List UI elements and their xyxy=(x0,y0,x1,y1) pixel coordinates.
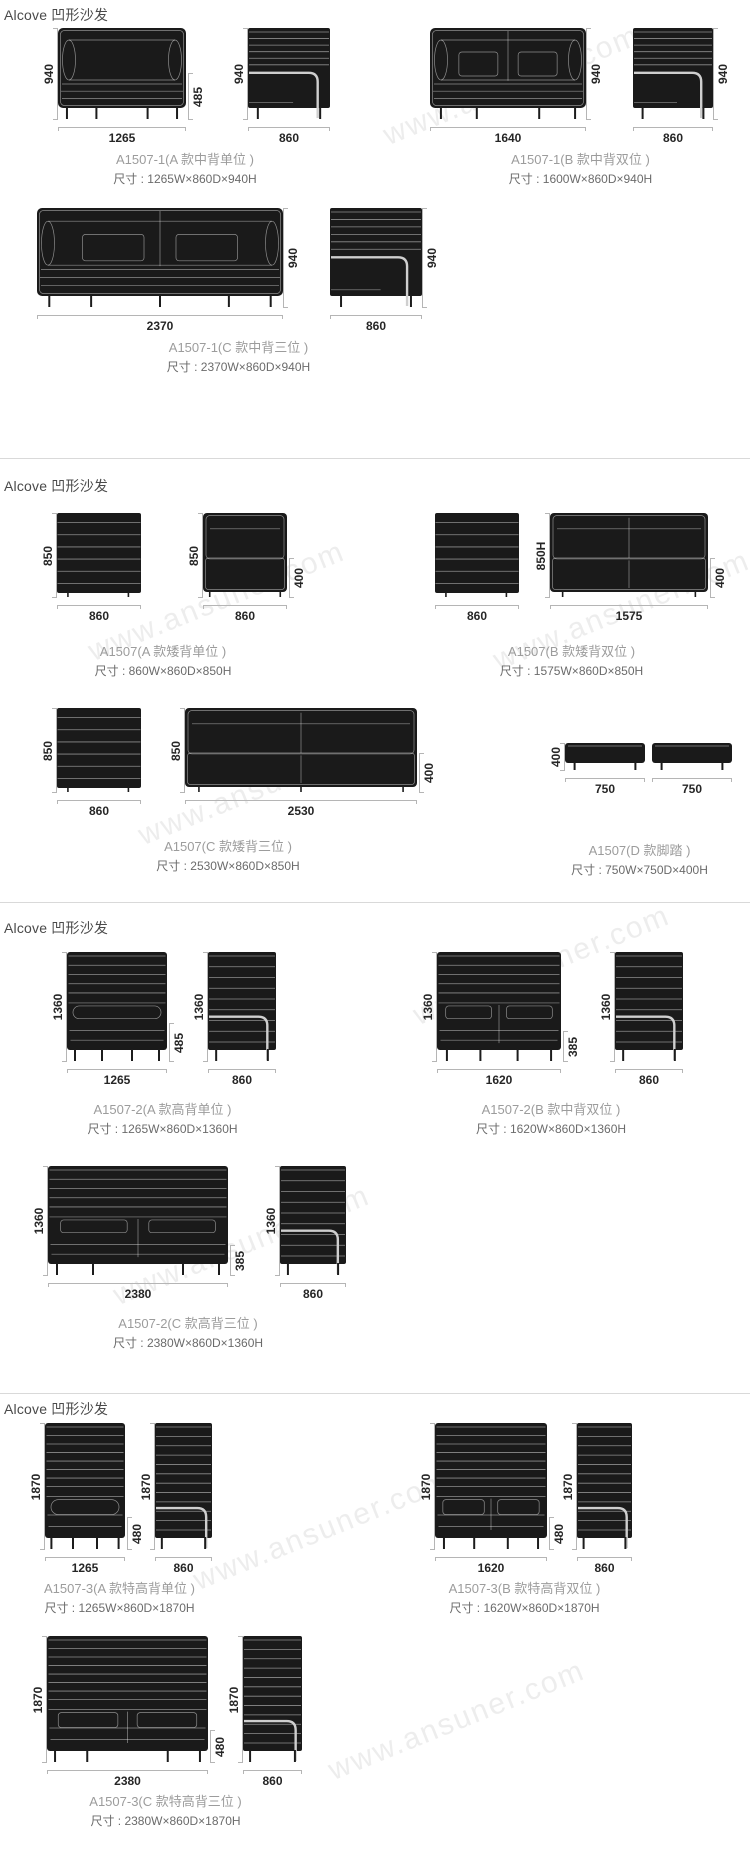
arm-height-dim: 485 xyxy=(188,73,206,120)
product-name: A1507-2(C 款高背三位 ) xyxy=(30,1315,346,1333)
sofa-side-drawing xyxy=(248,28,330,120)
sofa-side-drawing xyxy=(577,1423,632,1550)
back-panel-view: 850 860 xyxy=(39,513,141,621)
product-views: 1870 480 1265 1870 860 xyxy=(27,1423,212,1573)
side-view: 1870 860 xyxy=(137,1423,212,1573)
arm-height-dim: 385 xyxy=(230,1245,248,1276)
product-views: 1640 940 860 940 xyxy=(430,28,731,143)
height-dim: 940 xyxy=(586,28,604,120)
front-view: 1640 940 xyxy=(430,28,604,143)
sofa-back-panel-drawing xyxy=(57,513,141,598)
width-dim: 860 xyxy=(57,605,141,621)
width-dim: 860 xyxy=(633,127,713,143)
height-dim: 1870 xyxy=(225,1636,243,1763)
product-views: 2370 940 860 940 xyxy=(37,208,440,331)
width-dim: 860 xyxy=(330,315,422,331)
front-view: 850 400 860 xyxy=(185,513,287,621)
product-views: 850 860 850 400 2530 xyxy=(39,708,417,816)
front-view: 1870 480 2380 xyxy=(29,1636,208,1786)
product-a1507-2a: 1360 485 1265 1360 860 A1507-2(A 款高背单位 )… xyxy=(49,952,276,1139)
product-a1507c: 850 860 850 400 2530 A1507(C 款矮背三位 ) 尺寸 … xyxy=(39,708,417,876)
watermark-text: www.ansuner.com xyxy=(324,1654,590,1788)
product-views: 400 750 750 xyxy=(547,743,732,794)
product-dimensions: 尺寸 : 1265W×860D×1870H xyxy=(27,1598,212,1618)
sofa-front-drawing xyxy=(67,952,167,1062)
width-dim: 860 xyxy=(615,1069,683,1085)
product-a1507b: 860 850H 400 1575 A1507(B 款矮背双位 ) 尺寸 : 1… xyxy=(435,513,708,681)
sofa-side-drawing xyxy=(208,952,276,1062)
height-dim: 940 xyxy=(422,208,440,308)
height-dim: 940 xyxy=(283,208,301,308)
height-dim: 850 xyxy=(185,513,203,598)
section-divider xyxy=(0,458,750,459)
height-dim: 940 xyxy=(713,28,731,120)
height-dim: 1870 xyxy=(29,1636,47,1763)
product-dimensions: 尺寸 : 750W×750D×400H xyxy=(547,860,732,880)
product-a1507-3c: 1870 480 2380 1870 860 A1507-3(C 款特高背三位 … xyxy=(29,1636,302,1831)
product-a1507-1c: 2370 940 860 940 A1507-1(C 款中背三位 ) 尺寸 : … xyxy=(37,208,440,377)
product-dimensions: 尺寸 : 2380W×860D×1870H xyxy=(29,1811,302,1831)
seat-height-dim: 400 xyxy=(289,558,307,598)
height-dim: 1360 xyxy=(30,1166,48,1276)
product-a1507-1a: 940 485 1265 940 860 A1507-1(A 款中背单位 ) 尺… xyxy=(40,28,330,189)
width-dim: 1575 xyxy=(550,605,708,621)
product-views: 860 850H 400 1575 xyxy=(435,513,708,621)
back-panel-view: 860 xyxy=(435,513,519,621)
width-dim: 750 xyxy=(565,778,645,794)
front-view: 1870 480 1620 xyxy=(417,1423,547,1573)
sofa-front-drawing xyxy=(203,513,287,598)
product-name: A1507-2(A 款高背单位 ) xyxy=(49,1101,276,1119)
front-view: 850H 400 1575 xyxy=(532,513,708,621)
product-dimensions: 尺寸 : 2370W×860D×940H xyxy=(37,357,440,377)
width-dim: 860 xyxy=(155,1557,212,1573)
side-view: 1870 860 xyxy=(559,1423,632,1573)
height-dim: 1870 xyxy=(27,1423,45,1550)
product-name: A1507(C 款矮背三位 ) xyxy=(39,838,417,856)
front-view: 1360 485 1265 xyxy=(49,952,167,1085)
sofa-side-drawing xyxy=(155,1423,212,1550)
front-view: 1870 480 1265 xyxy=(27,1423,125,1573)
footstool-view: 750 xyxy=(652,743,732,794)
sofa-front-drawing xyxy=(550,513,708,598)
side-view: 940 860 xyxy=(230,28,330,143)
width-dim: 860 xyxy=(203,605,287,621)
product-views: 1870 480 1620 1870 860 xyxy=(417,1423,632,1573)
width-dim: 2370 xyxy=(37,315,283,331)
product-a1507-2c: 1360 385 2380 1360 860 A1507-2(C 款高背三位 )… xyxy=(30,1166,346,1353)
product-a1507-3a: 1870 480 1265 1870 860 A1507-3(A 款特高背单位 … xyxy=(27,1423,212,1618)
front-view: 940 485 1265 xyxy=(40,28,186,143)
sofa-side-drawing xyxy=(243,1636,302,1763)
product-dimensions: 尺寸 : 1575W×860D×850H xyxy=(435,661,708,681)
sofa-front-drawing xyxy=(58,28,186,120)
side-view: 1360 860 xyxy=(262,1166,346,1299)
product-name: A1507-3(A 款特高背单位 ) xyxy=(27,1580,212,1598)
product-a1507a: 850 860 850 400 860 A1507(A 款矮背单位 ) 尺寸 :… xyxy=(39,513,287,681)
sofa-front-drawing xyxy=(45,1423,125,1550)
product-dimensions: 尺寸 : 1620W×860D×1360H xyxy=(419,1119,683,1139)
product-dimensions: 尺寸 : 1265W×860D×1360H xyxy=(49,1119,276,1139)
section-title: Alcove 凹形沙发 xyxy=(4,918,108,938)
front-view: 850 400 2530 xyxy=(167,708,417,816)
sofa-side-drawing xyxy=(280,1166,346,1276)
front-view: 1360 385 1620 xyxy=(419,952,561,1085)
sofa-front-drawing xyxy=(435,1423,547,1550)
side-view: 1870 860 xyxy=(225,1636,302,1786)
product-name: A1507-3(C 款特高背三位 ) xyxy=(29,1793,302,1811)
side-view: 860 940 xyxy=(330,208,440,331)
sofa-side-drawing xyxy=(615,952,683,1062)
product-views: 1360 485 1265 1360 860 xyxy=(49,952,276,1085)
width-dim: 860 xyxy=(57,800,141,816)
watermark-text: www.ansuner.com xyxy=(189,1464,455,1598)
product-a1507-1b: 1640 940 860 940 A1507-1(B 款中背双位 ) 尺寸 : … xyxy=(430,28,731,189)
sofa-front-drawing xyxy=(437,952,561,1062)
product-a1507-3b: 1870 480 1620 1870 860 A1507-3(B 款特高背双位 … xyxy=(417,1423,632,1618)
height-dim: 1870 xyxy=(417,1423,435,1550)
side-view: 1360 860 xyxy=(190,952,276,1085)
product-a1507-2b: 1360 385 1620 1360 860 A1507-2(B 款中背双位 )… xyxy=(419,952,683,1139)
height-dim: 1360 xyxy=(419,952,437,1062)
width-dim: 860 xyxy=(435,605,519,621)
footstool-drawing xyxy=(565,743,645,771)
sofa-side-drawing xyxy=(633,28,713,120)
section-divider xyxy=(0,902,750,903)
footstool-drawing xyxy=(652,743,732,771)
product-a1507d: 400 750 750 A1507(D 款脚踏 ) 尺寸 : 750W×750D… xyxy=(547,743,732,880)
product-views: 1360 385 1620 1360 860 xyxy=(419,952,683,1085)
product-dimensions: 尺寸 : 2530W×860D×850H xyxy=(39,856,417,876)
height-dim: 1870 xyxy=(559,1423,577,1550)
side-view: 1360 860 xyxy=(597,952,683,1085)
height-dim: 850 xyxy=(39,513,57,598)
product-name: A1507-2(B 款中背双位 ) xyxy=(419,1101,683,1119)
width-dim: 1620 xyxy=(435,1557,547,1573)
sofa-front-drawing xyxy=(37,208,283,308)
product-dimensions: 尺寸 : 1265W×860D×940H xyxy=(40,169,330,189)
width-dim: 860 xyxy=(577,1557,632,1573)
seat-height-dim: 400 xyxy=(710,558,728,598)
product-name: A1507(B 款矮背双位 ) xyxy=(435,643,708,661)
seat-height-dim: 400 xyxy=(419,753,437,793)
section-title: Alcove 凹形沙发 xyxy=(4,476,108,496)
width-dim: 860 xyxy=(280,1283,346,1299)
product-name: A1507(D 款脚踏 ) xyxy=(547,842,732,860)
height-dim: 1360 xyxy=(49,952,67,1062)
sofa-side-drawing xyxy=(330,208,422,308)
height-dim: 940 xyxy=(230,28,248,120)
height-dim: 1870 xyxy=(137,1423,155,1550)
width-dim: 1640 xyxy=(430,127,586,143)
product-name: A1507(A 款矮背单位 ) xyxy=(39,643,287,661)
width-dim: 2380 xyxy=(48,1283,228,1299)
back-panel-view: 850 860 xyxy=(39,708,141,816)
width-dim: 1620 xyxy=(437,1069,561,1085)
sofa-back-panel-drawing xyxy=(435,513,519,598)
width-dim: 1265 xyxy=(67,1069,167,1085)
height-dim: 850 xyxy=(39,708,57,793)
product-dimensions: 尺寸 : 1600W×860D×940H xyxy=(430,169,731,189)
side-view: 860 940 xyxy=(633,28,731,143)
height-dim: 1360 xyxy=(190,952,208,1062)
width-dim: 1265 xyxy=(45,1557,125,1573)
section-title: Alcove 凹形沙发 xyxy=(4,1399,108,1419)
width-dim: 860 xyxy=(208,1069,276,1085)
product-dimensions: 尺寸 : 860W×860D×850H xyxy=(39,661,287,681)
catalog-page: www.ansuner.com www.ansuner.com www.ansu… xyxy=(0,0,750,1869)
product-name: A1507-1(A 款中背单位 ) xyxy=(40,151,330,169)
height-dim: 850H xyxy=(532,513,550,598)
front-view: 2370 940 xyxy=(37,208,301,331)
front-view: 1360 385 2380 xyxy=(30,1166,228,1299)
product-name: A1507-1(C 款中背三位 ) xyxy=(37,339,440,357)
section-title: Alcove 凹形沙发 xyxy=(4,5,108,25)
height-dim: 1360 xyxy=(262,1166,280,1276)
sofa-front-drawing xyxy=(430,28,586,120)
arm-height-dim: 485 xyxy=(169,1023,187,1062)
width-dim: 2380 xyxy=(47,1770,208,1786)
sofa-front-drawing xyxy=(48,1166,228,1276)
width-dim: 750 xyxy=(652,778,732,794)
width-dim: 2530 xyxy=(185,800,417,816)
sofa-back-panel-drawing xyxy=(57,708,141,793)
sofa-front-drawing xyxy=(47,1636,208,1763)
product-dimensions: 尺寸 : 2380W×860D×1360H xyxy=(30,1333,346,1353)
sofa-front-drawing xyxy=(185,708,417,793)
section-divider xyxy=(0,1393,750,1394)
height-dim: 1360 xyxy=(597,952,615,1062)
product-dimensions: 尺寸 : 1620W×860D×1870H xyxy=(417,1598,632,1618)
product-views: 940 485 1265 940 860 xyxy=(40,28,330,143)
footstool-view: 400 750 xyxy=(547,743,645,794)
width-dim: 1265 xyxy=(58,127,186,143)
width-dim: 860 xyxy=(243,1770,302,1786)
product-name: A1507-1(B 款中背双位 ) xyxy=(430,151,731,169)
height-dim: 400 xyxy=(547,743,565,771)
product-views: 1360 385 2380 1360 860 xyxy=(30,1166,346,1299)
product-views: 1870 480 2380 1870 860 xyxy=(29,1636,302,1786)
height-dim: 850 xyxy=(167,708,185,793)
arm-height-dim: 385 xyxy=(563,1031,581,1062)
product-views: 850 860 850 400 860 xyxy=(39,513,287,621)
product-name: A1507-3(B 款特高背双位 ) xyxy=(417,1580,632,1598)
height-dim: 940 xyxy=(40,28,58,120)
width-dim: 860 xyxy=(248,127,330,143)
